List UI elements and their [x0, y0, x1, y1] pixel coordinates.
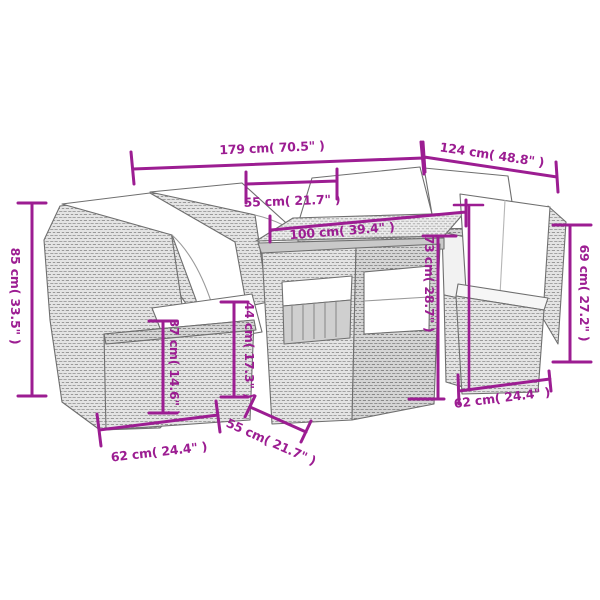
label-seat-base-height: 37 cm( 14.6" ): [167, 319, 181, 416]
label-table-height: 73 cm( 28.7" ): [422, 236, 436, 333]
label-chair-height: 69 cm( 27.2" ): [577, 245, 591, 342]
label-sofa-height: 85 cm( 33.5" ): [8, 248, 22, 345]
product-dimension-diagram: 179 cm( 70.5" ) 124 cm( 48.8" ) 55 cm( 2…: [0, 0, 600, 600]
right-chair: [456, 194, 566, 394]
furniture-illustration: [0, 0, 600, 600]
label-arm-height: 44 cm( 17.3" ): [242, 302, 256, 399]
